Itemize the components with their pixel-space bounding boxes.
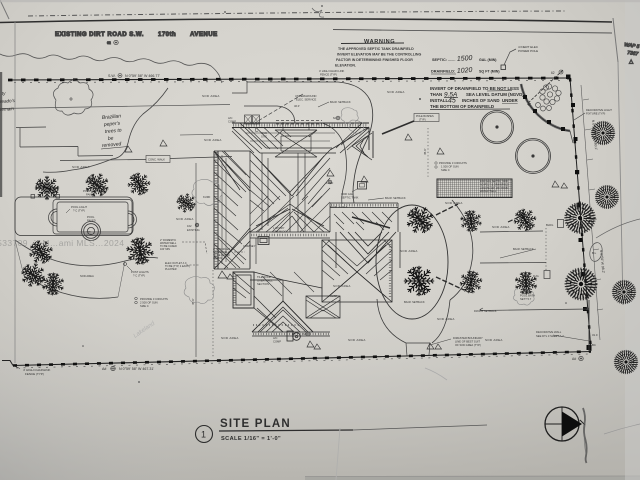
svg-text:1500: 1500: [457, 55, 473, 63]
svg-text:DIMASTER BOUNDARY: DIMASTER BOUNDARY: [453, 336, 483, 340]
svg-text:ELEVATION.: ELEVATION.: [335, 64, 356, 68]
svg-text:B.L: B.L: [592, 251, 597, 255]
svg-text:UNDERGROUND: UNDERGROUND: [295, 94, 317, 98]
svg-text:SOD AREA: SOD AREA: [204, 138, 222, 142]
svg-text:PROVIDE 3 CIRCUITS: PROVIDE 3 CIRCUITS: [439, 161, 467, 165]
svg-text:1020: 1020: [457, 67, 473, 75]
svg-text:OVER WALL: OVER WALL: [257, 278, 273, 282]
svg-text:BACK SETBACK: BACK SETBACK: [330, 100, 351, 104]
svg-text:POOL: POOL: [87, 215, 95, 219]
svg-text:100' MIN: 100' MIN: [160, 248, 170, 251]
svg-text:BACK SETBACK: BACK SETBACK: [404, 300, 425, 304]
svg-text:SOD AREA: SOD AREA: [445, 201, 463, 205]
svg-text:SOD AREA: SOD AREA: [72, 165, 90, 169]
svg-text:PROVIDE 3 CIRCUITS: PROVIDE 3 CIRCUITS: [140, 297, 168, 301]
svg-text:remain: remain: [0, 106, 15, 112]
svg-text:SIZE C: SIZE C: [441, 168, 450, 172]
svg-text:A#: A#: [572, 357, 576, 361]
svg-text:N 0°59' 58" W 466.77': N 0°59' 58" W 466.77': [125, 74, 160, 78]
svg-text:SEPTIC TANK: SEPTIC TANK: [341, 195, 359, 199]
svg-text:INVERT ELEVATION MAY BE THE CO: INVERT ELEVATION MAY BE THE CONTROLLING: [337, 53, 422, 57]
svg-text:SOD AREA: SOD AREA: [348, 338, 366, 342]
svg-text:BC: BC: [592, 343, 596, 347]
svg-text:FRONT SETBACK: FRONT SETBACK: [474, 309, 497, 313]
svg-text:1000 GAL: 1000 GAL: [341, 192, 354, 196]
svg-text:OF SOD AREA (TYP): OF SOD AREA (TYP): [455, 343, 481, 347]
svg-text:SET? 5.7: SET? 5.7: [520, 297, 532, 301]
svg-text:S.W.: S.W.: [108, 74, 116, 78]
svg-text:SOD AREA: SOD AREA: [221, 336, 239, 340]
svg-text:1: 1: [201, 430, 206, 440]
svg-text:62: 62: [107, 41, 111, 45]
svg-text:FACTOR IN DETERMINING FINISHED: FACTOR IN DETERMINING FINISHED FLOOR: [336, 58, 413, 62]
svg-text:SQ FT (MIN): SQ FT (MIN): [479, 70, 500, 74]
svg-text:SOD AREA: SOD AREA: [387, 90, 405, 94]
svg-text:EXISTING DIRT ROAD S.W.: EXISTING DIRT ROAD S.W.: [55, 31, 144, 38]
svg-text:BACK SETBACK: BACK SETBACK: [385, 196, 406, 200]
svg-text:THE APPROVED SEPTIC TANK DRAIN: THE APPROVED SEPTIC TANK DRAINFIELD: [338, 47, 414, 51]
svg-text:FUG: FUG: [533, 274, 539, 278]
svg-text:SEA LEVEL DATUM (NGVD): SEA LEVEL DATUM (NGVD): [466, 92, 524, 97]
svg-text:FENCE (TYP): FENCE (TYP): [25, 372, 44, 376]
svg-text:1 STORY: 1 STORY: [273, 226, 285, 230]
svg-text:EXISTING: EXISTING: [187, 228, 200, 232]
svg-text:SOD AREA: SOD AREA: [437, 317, 455, 321]
svg-text:30' MIN.: 30' MIN.: [213, 257, 223, 260]
svg-text:INSTALL: INSTALL: [430, 98, 449, 103]
svg-text:COMP: COMP: [228, 119, 236, 123]
svg-text:SOD AREA: SOD AREA: [80, 274, 94, 278]
svg-text:DECORATIVE LIGHT: DECORATIVE LIGHT: [586, 108, 612, 112]
svg-text:THE BOTTOM OF DRAINFIELD: THE BOTTOM OF DRAINFIELD: [430, 104, 494, 109]
svg-text:FENCE (TYP): FENCE (TYP): [320, 72, 337, 76]
svg-text:WATER WELL: WATER WELL: [480, 190, 497, 193]
svg-text:DRAINFIELD:: DRAINFIELD:: [431, 70, 455, 74]
svg-text:AVENUE: AVENUE: [190, 31, 218, 38]
svg-text:INCHES OF SAND: INCHES OF SAND: [462, 98, 500, 103]
svg-text:A#: A#: [102, 367, 106, 371]
svg-text:WARNING: WARNING: [364, 39, 395, 45]
svg-text:LINE OF BEST SUIT: LINE OF BEST SUIT: [455, 339, 480, 343]
svg-text:THAN: THAN: [430, 92, 442, 97]
svg-text:SCALE 1/16" = 1'-0": SCALE 1/16" = 1'-0": [221, 436, 281, 442]
svg-text:TILE ROOF: TILE ROOF: [257, 275, 272, 279]
svg-text:INVERT OF DRAINFIELD TO BE NOT: INVERT OF DRAINFIELD TO BE NOT LESS: [430, 86, 519, 91]
svg-text:KURF: KURF: [203, 195, 211, 199]
svg-text:45.0': 45.0': [423, 148, 427, 155]
svg-text:POOL BATH: POOL BATH: [520, 293, 535, 297]
svg-text:HTR: HTR: [87, 234, 92, 236]
svg-text:SEPTIC: .......: SEPTIC: .......: [432, 58, 455, 62]
svg-text:KURF: KURF: [330, 294, 338, 298]
svg-text:SOD AREA: SOD AREA: [330, 205, 348, 209]
svg-text:170th: 170th: [158, 31, 176, 38]
svg-text:CBS BLDG: CBS BLDG: [273, 229, 287, 233]
svg-text:(TYP): (TYP): [419, 118, 426, 121]
svg-text:A/C: A/C: [228, 116, 233, 120]
svg-text:46.0': 46.0': [294, 104, 300, 108]
svg-text:PAVED: PAVED: [87, 218, 96, 222]
svg-text:1533709 ⋮ M…ami MLS…2024: 1533709 ⋮ M…ami MLS…2024: [0, 238, 124, 248]
svg-text:GAL (MIN): GAL (MIN): [479, 58, 497, 62]
svg-text:POOL LIGHT: POOL LIGHT: [71, 205, 87, 209]
svg-text:2 500 OF SUN: 2 500 OF SUN: [140, 301, 158, 305]
svg-text:A/C: A/C: [273, 336, 278, 340]
svg-text:be: be: [108, 136, 114, 142]
svg-text:4' HIGH CHAIN LINK: 4' HIGH CHAIN LINK: [319, 69, 345, 73]
svg-text:SOD AREA: SOD AREA: [333, 284, 351, 288]
svg-text:SITE: SITE: [261, 134, 267, 138]
svg-text:45: 45: [448, 98, 456, 105]
svg-text:FUTURE: FUTURE: [520, 290, 531, 294]
svg-text:? C (TYP): ? C (TYP): [133, 274, 145, 278]
svg-text:COMP: COMP: [273, 339, 281, 343]
svg-text:ELEC. SERVICE: ELEC. SERVICE: [296, 97, 316, 101]
svg-text:162: 162: [187, 224, 192, 228]
svg-text:N 0°59' 58" W 467.31': N 0°59' 58" W 467.31': [119, 367, 154, 371]
svg-text:SIZE C: SIZE C: [140, 304, 149, 308]
svg-text:SOD AREA: SOD AREA: [485, 338, 503, 342]
svg-text:DECORATIVE WALL: DECORATIVE WALL: [536, 330, 562, 334]
svg-text:MUD: MUD: [261, 131, 267, 135]
svg-text:SOD AREA: SOD AREA: [176, 217, 194, 221]
svg-text:SITE PLAN: SITE PLAN: [220, 418, 291, 430]
svg-text:UNDER: UNDER: [502, 98, 518, 103]
svg-text:CHIMNEY: CHIMNEY: [243, 244, 256, 248]
svg-text:SOD AREA: SOD AREA: [400, 249, 418, 253]
svg-text:SOD AREA: SOD AREA: [202, 94, 220, 98]
svg-text:? C (TYP): ? C (TYP): [73, 208, 85, 212]
svg-text:POST LIGHTS: POST LIGHTS: [131, 270, 149, 274]
svg-text:PLANTER: PLANTER: [165, 268, 177, 271]
svg-text:POWER POLE: POWER POLE: [518, 49, 538, 53]
svg-text:CONC. WALK: CONC. WALK: [148, 158, 165, 162]
svg-text:FIXTURE (TYP): FIXTURE (TYP): [586, 111, 605, 115]
svg-text:SOD AREA: SOD AREA: [492, 225, 510, 229]
svg-text:BLDG: BLDG: [546, 223, 553, 227]
svg-text:SECTION: SECTION: [257, 282, 269, 286]
svg-text:62: 62: [551, 71, 555, 75]
svg-text:31.0: 31.0: [592, 333, 598, 337]
svg-text:1 500 OF SUN: 1 500 OF SUN: [441, 164, 459, 168]
